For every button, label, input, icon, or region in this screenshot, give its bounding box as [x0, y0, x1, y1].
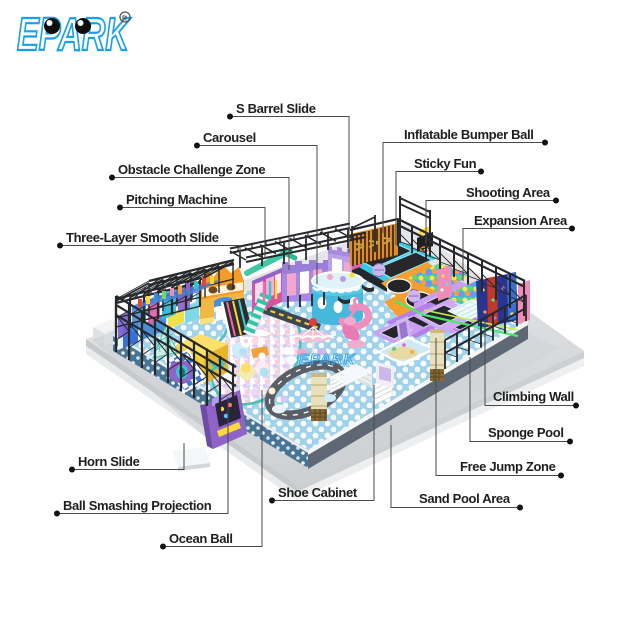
svg-text:Carousel: Carousel	[203, 130, 256, 145]
svg-text:Horn Slide: Horn Slide	[78, 454, 140, 469]
svg-text:Ball Smashing Projection: Ball Smashing Projection	[63, 498, 212, 513]
svg-text:EPARK: EPARK	[17, 8, 131, 60]
svg-text:Sand Pool Area: Sand Pool Area	[419, 491, 511, 506]
svg-text:Shooting Area: Shooting Area	[466, 185, 551, 200]
svg-text:Sticky Fun: Sticky Fun	[414, 156, 477, 171]
svg-text:Climbing Wall: Climbing Wall	[493, 389, 574, 404]
svg-text:Inflatable Bumper Ball: Inflatable Bumper Ball	[404, 127, 534, 142]
svg-text:Expansion Area: Expansion Area	[474, 213, 568, 228]
svg-text:EPARK: EPARK	[299, 351, 356, 368]
svg-text:Three-Layer Smooth Slide: Three-Layer Smooth Slide	[66, 230, 219, 245]
svg-text:R: R	[122, 16, 127, 23]
svg-text:S Barrel Slide: S Barrel Slide	[236, 101, 316, 116]
svg-text:Sponge Pool: Sponge Pool	[488, 425, 564, 440]
svg-text:Shoe Cabinet: Shoe Cabinet	[278, 485, 358, 500]
svg-text:Ocean Ball: Ocean Ball	[169, 531, 233, 546]
svg-text:Free Jump Zone: Free Jump Zone	[460, 459, 556, 474]
svg-text:Obstacle Challenge Zone: Obstacle Challenge Zone	[118, 162, 265, 177]
svg-text:Pitching Machine: Pitching Machine	[126, 192, 227, 207]
